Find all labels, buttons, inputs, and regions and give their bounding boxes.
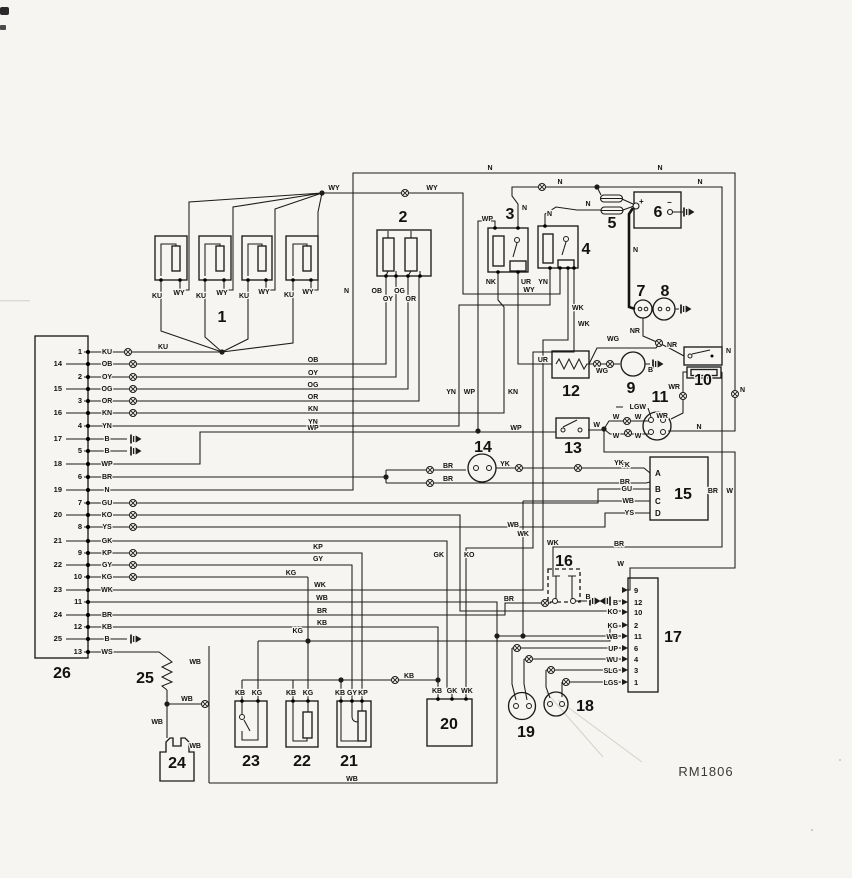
svg-text:WP: WP: [101, 461, 113, 468]
svg-text:WK: WK: [314, 582, 326, 589]
svg-text:WR: WR: [656, 413, 668, 420]
svg-text:YK: YK: [614, 460, 624, 467]
svg-text:5: 5: [78, 446, 82, 455]
svg-text:BR: BR: [620, 479, 630, 486]
svg-text:11: 11: [634, 632, 642, 641]
svg-text:WU: WU: [606, 657, 618, 664]
component-number-14: 14: [474, 439, 492, 456]
svg-text:WB: WB: [189, 659, 201, 666]
svg-text:WY: WY: [328, 185, 340, 192]
component-number-9: 9: [627, 380, 636, 397]
component-number-8: 8: [661, 283, 670, 300]
svg-text:WB: WB: [189, 743, 201, 750]
svg-text:KB: KB: [432, 688, 442, 695]
svg-text:KO: KO: [464, 552, 475, 559]
svg-text:GY: GY: [102, 562, 112, 569]
svg-text:BR: BR: [102, 612, 112, 619]
svg-text:KG: KG: [293, 628, 304, 635]
svg-text:WY: WY: [258, 289, 270, 296]
svg-text:N: N: [726, 348, 731, 355]
svg-text:WK: WK: [101, 587, 113, 594]
svg-text:W: W: [635, 433, 642, 440]
svg-text:B: B: [104, 436, 109, 443]
svg-text:WK: WK: [547, 540, 559, 547]
svg-text:KG: KG: [102, 574, 113, 581]
svg-text:SLG: SLG: [604, 668, 619, 675]
component-number-20: 20: [440, 716, 458, 733]
svg-text:WY: WY: [302, 289, 314, 296]
svg-text:17: 17: [54, 434, 62, 443]
svg-text:GK: GK: [102, 538, 113, 545]
svg-text:19: 19: [54, 485, 62, 494]
svg-text:18: 18: [54, 459, 62, 468]
svg-text:12: 12: [634, 598, 642, 607]
svg-text:NK: NK: [486, 279, 496, 286]
svg-text:KU: KU: [102, 349, 112, 356]
svg-text:KB: KB: [317, 620, 327, 627]
svg-text:WY: WY: [173, 290, 185, 297]
svg-text:BR: BR: [614, 541, 624, 548]
svg-text:WG: WG: [607, 336, 620, 343]
svg-text:24: 24: [54, 610, 63, 619]
svg-text:KG: KG: [286, 570, 297, 577]
wiring-diagram: 1 2 3 4 5 6 7 8 9 10 11 12 13 14 15 16 1…: [0, 0, 852, 878]
svg-text:OB: OB: [372, 288, 383, 295]
svg-text:LGS: LGS: [604, 680, 619, 687]
component-number-5: 5: [608, 215, 617, 232]
svg-text:W: W: [617, 561, 624, 568]
component-number-15: 15: [674, 486, 692, 503]
svg-text:BR: BR: [708, 488, 718, 495]
component-number-13: 13: [564, 440, 582, 457]
svg-text:N: N: [697, 179, 702, 186]
svg-text:N: N: [657, 165, 662, 172]
svg-text:KO: KO: [608, 609, 619, 616]
svg-text:YK: YK: [500, 461, 510, 468]
svg-text:WK: WK: [572, 305, 584, 312]
svg-text:GK: GK: [447, 688, 458, 695]
component-number-2: 2: [399, 209, 408, 226]
svg-text:11: 11: [74, 597, 82, 606]
svg-text:25: 25: [54, 634, 62, 643]
svg-text:WB: WB: [507, 522, 519, 529]
svg-text:N: N: [487, 165, 492, 172]
svg-text:BR: BR: [504, 596, 514, 603]
svg-text:WP: WP: [307, 425, 319, 432]
component-number-17: 17: [664, 629, 682, 646]
svg-text:13: 13: [74, 647, 82, 656]
svg-text:B: B: [585, 594, 590, 601]
svg-text:WY: WY: [426, 185, 438, 192]
component-number-21: 21: [340, 753, 358, 770]
svg-text:GY: GY: [347, 690, 357, 697]
svg-text:KB: KB: [335, 690, 345, 697]
svg-text:WR: WR: [668, 384, 680, 391]
svg-text:KG: KG: [252, 690, 263, 697]
component-number-4: 4: [582, 241, 591, 258]
svg-text:NR: NR: [630, 328, 640, 335]
svg-text:22: 22: [54, 560, 62, 569]
svg-text:WB: WB: [181, 696, 193, 703]
svg-text:YN: YN: [538, 279, 548, 286]
reference-code: RM1806: [678, 764, 733, 779]
svg-text:GU: GU: [102, 500, 113, 507]
svg-text:6: 6: [634, 644, 638, 653]
svg-text:W: W: [726, 488, 733, 495]
svg-text:10: 10: [634, 608, 642, 617]
svg-text:WY: WY: [523, 287, 535, 294]
svg-text:OG: OG: [394, 288, 405, 295]
svg-text:B: B: [104, 636, 109, 643]
svg-text:OG: OG: [102, 386, 113, 393]
svg-text:KU: KU: [284, 292, 294, 299]
svg-text:W: W: [593, 422, 600, 429]
svg-text:W: W: [613, 433, 620, 440]
svg-text:GU: GU: [622, 486, 633, 493]
svg-text:C: C: [655, 497, 661, 506]
component-number-25: 25: [136, 670, 154, 687]
svg-text:20: 20: [54, 510, 62, 519]
svg-text:LGW: LGW: [630, 404, 647, 411]
svg-text:B: B: [613, 600, 618, 607]
svg-text:KU: KU: [158, 344, 168, 351]
svg-text:WS: WS: [101, 649, 113, 656]
svg-text:KB: KB: [404, 673, 414, 680]
paper-background: [0, 0, 852, 878]
svg-text:KP: KP: [102, 550, 112, 557]
svg-text:KO: KO: [102, 512, 113, 519]
svg-text:N: N: [585, 201, 590, 208]
svg-text:BR: BR: [317, 608, 327, 615]
svg-text:KU: KU: [239, 293, 249, 300]
component-number-24: 24: [168, 755, 186, 772]
svg-text:B: B: [104, 448, 109, 455]
component-number-1: 1: [218, 309, 227, 326]
svg-text:N: N: [344, 288, 349, 295]
svg-text:WK: WK: [578, 321, 590, 328]
svg-text:BR: BR: [102, 474, 112, 481]
svg-text:16: 16: [54, 408, 62, 417]
svg-text:WB: WB: [316, 595, 328, 602]
svg-text:KN: KN: [308, 406, 318, 413]
svg-text:6: 6: [78, 472, 82, 481]
svg-text:N: N: [547, 211, 552, 218]
svg-text:KN: KN: [102, 410, 112, 417]
svg-text:WP: WP: [464, 389, 476, 396]
svg-text:N: N: [557, 179, 562, 186]
component-number-6: 6: [654, 204, 663, 221]
svg-text:YN: YN: [446, 389, 456, 396]
svg-text:D: D: [655, 509, 661, 518]
svg-text:OY: OY: [102, 374, 112, 381]
svg-text:2: 2: [634, 621, 638, 630]
svg-text:WP: WP: [510, 425, 522, 432]
svg-text:23: 23: [54, 585, 62, 594]
svg-text:KP: KP: [358, 690, 368, 697]
svg-text:1: 1: [634, 678, 638, 687]
svg-text:OR: OR: [102, 398, 113, 405]
svg-text:12: 12: [74, 622, 82, 631]
svg-text:OG: OG: [308, 382, 319, 389]
svg-text:OR: OR: [308, 394, 319, 401]
component-number-7: 7: [637, 283, 646, 300]
svg-text:WK: WK: [517, 531, 529, 538]
svg-text:W: W: [613, 414, 620, 421]
svg-text:KB: KB: [235, 690, 245, 697]
component-number-16: 16: [555, 553, 573, 570]
component-number-10: 10: [694, 372, 712, 389]
scanned-wiring-diagram-page: 1 2 3 4 5 6 7 8 9 10 11 12 13 14 15 16 1…: [0, 0, 852, 878]
svg-text:KP: KP: [313, 544, 323, 551]
svg-text:A: A: [655, 469, 661, 478]
svg-text:WB: WB: [151, 719, 163, 726]
svg-text:KU: KU: [152, 293, 162, 300]
svg-text:WB: WB: [622, 498, 634, 505]
svg-text:9: 9: [634, 586, 638, 595]
svg-text:YS: YS: [102, 524, 112, 531]
svg-text:BR: BR: [443, 476, 453, 483]
svg-text:OY: OY: [383, 296, 393, 303]
svg-text:N: N: [740, 387, 745, 394]
svg-text:10: 10: [74, 572, 82, 581]
svg-text:B: B: [655, 485, 661, 494]
component-number-12: 12: [562, 383, 580, 400]
svg-text:UP: UP: [608, 646, 618, 653]
svg-text:GK: GK: [434, 552, 445, 559]
svg-text:N: N: [104, 487, 109, 494]
svg-text:UR: UR: [538, 357, 548, 364]
svg-text:WK: WK: [461, 688, 473, 695]
connector-17-arrowheads: [622, 587, 628, 685]
battery-plus: +: [639, 197, 644, 206]
svg-text:KU: KU: [196, 293, 206, 300]
svg-text:OB: OB: [308, 357, 319, 364]
svg-text:3: 3: [78, 396, 82, 405]
component-number-26: 26: [53, 665, 71, 682]
svg-text:KB: KB: [102, 624, 112, 631]
svg-text:KG: KG: [303, 690, 314, 697]
svg-text:9: 9: [78, 548, 82, 557]
svg-text:W: W: [635, 414, 642, 421]
svg-text:UR: UR: [521, 279, 531, 286]
svg-text:3: 3: [634, 666, 638, 675]
svg-text:N: N: [696, 424, 701, 431]
svg-text:N: N: [522, 205, 527, 212]
component-number-11: 11: [652, 389, 669, 406]
svg-text:2: 2: [78, 372, 82, 381]
svg-text:8: 8: [78, 522, 82, 531]
component-number-3: 3: [506, 206, 515, 223]
svg-text:15: 15: [54, 384, 62, 393]
svg-text:WB: WB: [346, 776, 358, 783]
svg-text:7: 7: [78, 498, 82, 507]
svg-text:OB: OB: [102, 361, 113, 368]
svg-text:KN: KN: [508, 389, 518, 396]
svg-text:WP: WP: [482, 216, 494, 223]
svg-text:BR: BR: [443, 463, 453, 470]
svg-text:OR: OR: [406, 296, 417, 303]
svg-text:N: N: [633, 247, 638, 254]
svg-text:NR: NR: [667, 342, 677, 349]
svg-text:OY: OY: [308, 370, 318, 377]
component-number-23: 23: [242, 753, 260, 770]
svg-text:WB: WB: [606, 634, 618, 641]
svg-text:GY: GY: [313, 556, 323, 563]
component-number-19: 19: [517, 724, 535, 741]
svg-text:1: 1: [78, 347, 82, 356]
svg-text:YN: YN: [102, 423, 112, 430]
svg-text:KB: KB: [286, 690, 296, 697]
svg-text:21: 21: [54, 536, 62, 545]
svg-text:14: 14: [54, 359, 63, 368]
component-number-18: 18: [576, 698, 594, 715]
svg-text:KG: KG: [608, 623, 619, 630]
battery-minus: −: [667, 198, 672, 207]
component-number-22: 22: [293, 753, 311, 770]
svg-text:B: B: [648, 367, 653, 374]
svg-text:YS: YS: [625, 510, 635, 517]
svg-text:WY: WY: [216, 290, 228, 297]
svg-text:WG: WG: [596, 368, 609, 375]
